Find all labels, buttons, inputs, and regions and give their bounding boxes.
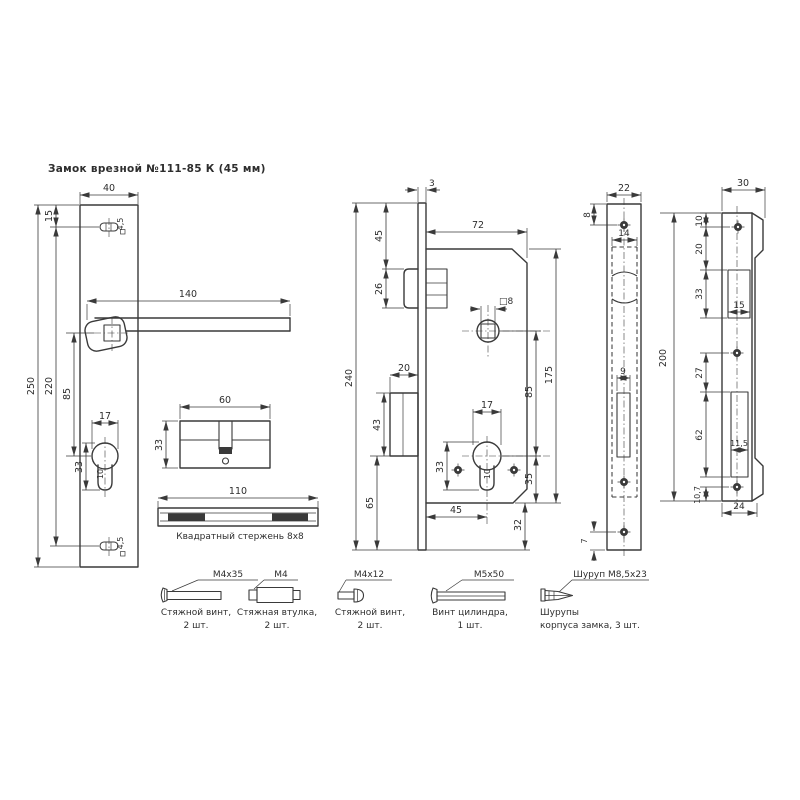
dim-top-offset: 15 bbox=[44, 210, 55, 222]
dim-faceplate-top-screw: 8 bbox=[583, 212, 593, 218]
dim-hole-spacing: 220 bbox=[44, 377, 55, 395]
fastener-caption: Стяжной винт, bbox=[161, 608, 231, 618]
fastener-qty: 2 шт. bbox=[184, 621, 209, 631]
screw-hole-mark bbox=[618, 526, 631, 539]
dim-centers: 85 bbox=[524, 386, 535, 398]
fastener-spec: М4 bbox=[274, 570, 288, 580]
fastener-spec: М4х12 bbox=[354, 570, 384, 580]
dim-faceplate-thickness: 3 bbox=[429, 179, 435, 189]
latch-front-bottom bbox=[612, 299, 637, 303]
dim-plate-width: 40 bbox=[103, 183, 115, 194]
spindle-hole bbox=[462, 305, 550, 358]
rod-caption: Квадратный стержень 8х8 bbox=[176, 532, 304, 542]
fastener-caption: Винт цилиндра, bbox=[432, 608, 508, 618]
screw-hole-mark bbox=[731, 481, 744, 494]
fastener-qty: 1 шт. bbox=[458, 621, 483, 631]
dim-keyhole-slot: 10 bbox=[96, 469, 105, 479]
cylinder-hole bbox=[462, 436, 550, 524]
dim-centers-left: 85 bbox=[62, 388, 73, 400]
dim-handle-length: 140 bbox=[179, 289, 197, 300]
dim-bolt-opening-width: 11,5 bbox=[730, 439, 748, 448]
plate-keyhole bbox=[92, 437, 118, 497]
dead-bolt bbox=[390, 393, 418, 456]
fastener-cylinder-screw: М5х50 Винт цилиндра, 1 шт. bbox=[431, 570, 514, 631]
cylinder-cam-pin bbox=[223, 458, 229, 464]
dim-strike-62: 62 bbox=[695, 429, 705, 440]
fastener-spec: М4х35 bbox=[213, 570, 243, 580]
strike-lip bbox=[752, 213, 763, 501]
square-rod-detail: 110 Квадратный стержень 8х8 bbox=[158, 486, 318, 542]
dim-bolt-to-bottom: 65 bbox=[365, 497, 376, 509]
screw-post-mark bbox=[452, 464, 465, 477]
fastener-qty: 2 шт. bbox=[358, 621, 383, 631]
fastener-qty: корпуса замка, 3 шт. bbox=[540, 621, 640, 631]
dim-strike-27: 27 bbox=[695, 367, 705, 378]
screw-post-mark bbox=[508, 464, 521, 477]
dim-keyhole-height: 33 bbox=[74, 461, 85, 473]
dim-plate-height: 250 bbox=[26, 377, 37, 395]
dim-strike-33: 33 bbox=[695, 288, 705, 299]
fastener-spec: М5х50 bbox=[474, 570, 505, 580]
fastener-caption: Стяжной винт, bbox=[335, 608, 405, 618]
technical-drawing: Замок врезной №111-85 К (45 мм) 4,5 4,5 bbox=[0, 0, 800, 800]
dim-strike-107: 10,7 bbox=[693, 486, 702, 504]
door-handle bbox=[83, 315, 290, 353]
dim-bolt-height: 43 bbox=[372, 419, 383, 431]
dim-strike-10: 10 bbox=[695, 215, 705, 227]
dim-backset: 45 bbox=[450, 505, 462, 516]
faceplate-view: 22 8 14 9 7 bbox=[580, 183, 641, 561]
dim-top-to-latch: 45 bbox=[374, 230, 385, 242]
dim-cylinder-length: 60 bbox=[219, 395, 231, 406]
dim-total-height: 240 bbox=[344, 369, 355, 387]
screw-hole-mark bbox=[732, 221, 745, 234]
dim-cylhole-width: 17 bbox=[481, 400, 493, 411]
cylinder-detail: 60 33 bbox=[154, 395, 270, 468]
dim-square-hole: □8 bbox=[499, 297, 514, 307]
dim-cylhole-slot: 10 bbox=[483, 469, 492, 479]
dim-body-to-plate-bottom: 32 bbox=[513, 519, 524, 531]
fastener-wood-screw: Шуруп М8,5х23 Шурупы корпуса замка, 3 шт… bbox=[540, 570, 649, 631]
dim-rod-length: 110 bbox=[229, 486, 247, 497]
cylinder-outline bbox=[180, 421, 270, 468]
drawing-page: Замок врезной №111-85 К (45 мм) 4,5 4,5 bbox=[0, 0, 800, 800]
dim-strike-height: 200 bbox=[658, 349, 669, 367]
dim-bolt-width: 20 bbox=[398, 363, 410, 374]
fastener-qty: 2 шт. bbox=[265, 621, 290, 631]
dim-keyhole-width: 17 bbox=[99, 411, 111, 422]
top-fixing-slot: 4,5 bbox=[100, 218, 125, 237]
latch-bolt bbox=[404, 269, 447, 308]
dim-cylhole-height: 33 bbox=[435, 461, 446, 473]
bolt-opening bbox=[731, 392, 748, 477]
handle-plate-outline bbox=[80, 205, 138, 567]
strike-plate-view: 30 10 20 33 27 62 10,7 15 11,5 24 bbox=[693, 178, 765, 517]
drawing-title: Замок врезной №111-85 К (45 мм) bbox=[48, 163, 266, 175]
dim-bottom-hole: 4,5 bbox=[116, 537, 125, 550]
dim-faceplate-bottom-screw: 7 bbox=[580, 538, 589, 543]
lock-faceplate-edge bbox=[418, 203, 426, 550]
dim-strike-20: 20 bbox=[695, 243, 705, 255]
latch-front-top bbox=[612, 272, 637, 276]
dim-faceplate-slot-width: 14 bbox=[618, 229, 630, 239]
dim-cylinder-height: 33 bbox=[154, 439, 165, 451]
dim-bolt-slot-width: 9 bbox=[620, 367, 626, 377]
fastener-tie-sleeve: М4 Стяжная втулка, 2 шт. bbox=[237, 570, 317, 631]
lock-body-view: 3 240 45 26 20 43 65 72 □8 bbox=[344, 179, 561, 550]
fastener-caption: Шурупы bbox=[540, 608, 579, 618]
fastener-spec: Шуруп М8,5х23 bbox=[573, 570, 647, 580]
fastener-tie-screw-short: М4х12 Стяжной винт, 2 шт. bbox=[335, 570, 405, 631]
dim-cyl-to-bottom: 35 bbox=[524, 473, 535, 485]
dim-top-hole: 4,5 bbox=[116, 218, 125, 231]
dim-strike-flat-width: 24 bbox=[733, 502, 745, 512]
dim-latch-height: 26 bbox=[374, 283, 385, 295]
bottom-fixing-slot: 4,5 bbox=[100, 537, 125, 556]
dim-faceplate-width: 22 bbox=[618, 183, 630, 194]
screw-hole-mark bbox=[731, 347, 744, 360]
dim-strike-width: 30 bbox=[737, 178, 749, 189]
dim-latch-opening-width: 15 bbox=[733, 301, 744, 311]
dim-body-height: 175 bbox=[544, 366, 555, 384]
screw-hole-mark bbox=[618, 476, 631, 489]
dim-body-width: 72 bbox=[472, 220, 484, 231]
fastener-tie-screw-long: М4х35 Стяжной винт, 2 шт. bbox=[161, 570, 258, 631]
fastener-caption: Стяжная втулка, bbox=[237, 608, 317, 618]
bolt-slot bbox=[617, 393, 630, 457]
